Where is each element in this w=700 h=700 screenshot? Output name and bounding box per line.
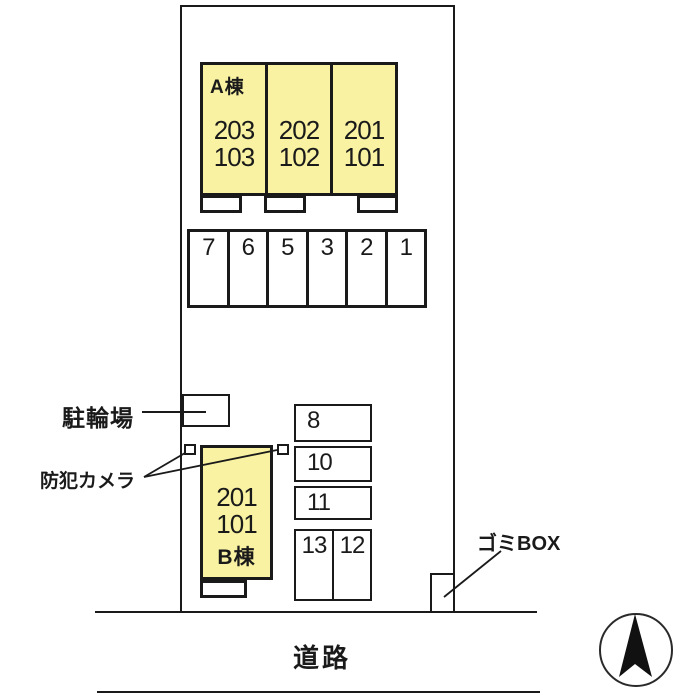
parking-space: 11 (294, 486, 372, 520)
unit-numbers: 203 103 (203, 117, 265, 171)
building-b: 201 101 B棟 (200, 445, 273, 580)
unit-numbers: 201 101 (203, 484, 270, 538)
security-camera-icon (184, 444, 196, 455)
unit-numbers: 202 102 (268, 117, 330, 171)
parking-space: 7 (190, 232, 227, 305)
unit-number-lower: 103 (203, 144, 265, 171)
unit-number-lower: 101 (333, 144, 395, 171)
north-arrow-icon (619, 614, 652, 677)
parking-row-bottom: 13 12 (294, 529, 372, 601)
building-a-unit-1: A棟 203 103 (203, 65, 265, 193)
building-b-label: B棟 (203, 541, 270, 571)
unit-number-upper: 202 (268, 117, 330, 144)
parking-space: 10 (294, 446, 372, 482)
camera-left-leader-line (144, 453, 185, 477)
unit-numbers: 201 101 (333, 117, 395, 171)
north-compass (596, 610, 676, 690)
garbage-box (430, 573, 455, 613)
entrance-porch (200, 580, 247, 598)
unit-number-upper: 201 (203, 484, 270, 511)
bicycle-parking-label: 駐輪場 (62, 399, 134, 433)
road-label: 道路 (287, 638, 357, 675)
building-a-unit-2: 202 102 (265, 65, 330, 193)
parking-space: 2 (345, 232, 385, 305)
parking-space: 6 (227, 232, 267, 305)
unit-number-upper: 201 (333, 117, 395, 144)
parking-space: 3 (306, 232, 346, 305)
unit-number-upper: 203 (203, 117, 265, 144)
entrance-porch (357, 195, 398, 213)
security-camera-icon (277, 444, 289, 455)
parking-space: 12 (332, 531, 370, 599)
security-camera-label: 防犯カメラ (40, 466, 135, 493)
unit-number-lower: 101 (203, 511, 270, 538)
garbage-box-label: ゴミBOX (477, 527, 560, 556)
site-plan-diagram: A棟 203 103 202 102 201 101 7 6 5 3 2 1 (0, 0, 700, 700)
road-edge-line (97, 691, 540, 693)
building-a-label: A棟 (210, 72, 245, 99)
parking-space: 8 (294, 404, 372, 442)
building-a: A棟 203 103 202 102 201 101 (200, 62, 398, 196)
parking-row-top: 7 6 5 3 2 1 (187, 229, 427, 308)
entrance-porch (264, 195, 306, 213)
parking-space: 1 (385, 232, 425, 305)
building-a-unit-3: 201 101 (330, 65, 395, 193)
road-edge-line (95, 611, 537, 613)
entrance-porch (200, 195, 242, 213)
bicycle-parking-area (182, 394, 230, 427)
unit-number-lower: 102 (268, 144, 330, 171)
parking-space: 13 (296, 531, 332, 599)
parking-space: 5 (266, 232, 306, 305)
